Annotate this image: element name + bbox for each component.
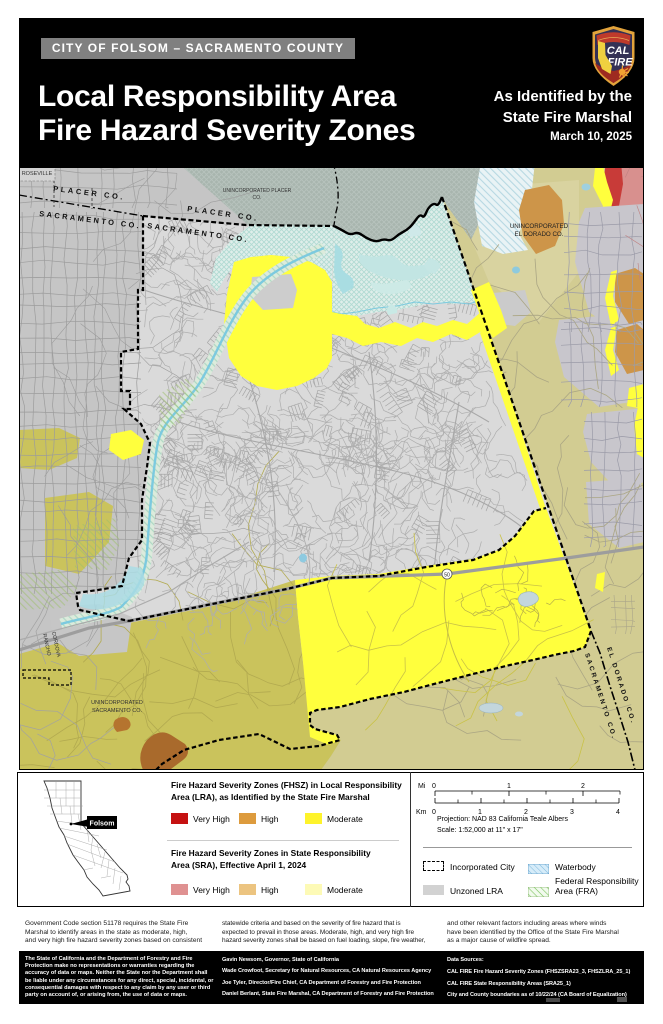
svg-text:EL DORADO CO.: EL DORADO CO. xyxy=(515,231,564,238)
svg-text:1: 1 xyxy=(478,809,482,816)
svg-text:Km: Km xyxy=(416,809,427,816)
svg-text:UNINCORPORATED PLACER: UNINCORPORATED PLACER xyxy=(223,188,292,194)
svg-text:1: 1 xyxy=(507,783,511,790)
svg-text:CAL: CAL xyxy=(607,45,630,57)
svg-text:UNINCORPORATED: UNINCORPORATED xyxy=(91,700,143,706)
svg-text:0: 0 xyxy=(432,809,436,816)
svg-text:ROSEVILLE: ROSEVILLE xyxy=(22,171,53,177)
svg-text:UNINCORPORATED: UNINCORPORATED xyxy=(510,223,569,230)
svg-text:2: 2 xyxy=(581,783,585,790)
svg-text:Mi: Mi xyxy=(418,783,426,790)
svg-text:3: 3 xyxy=(570,809,574,816)
svg-text:Folsom: Folsom xyxy=(90,821,115,828)
svg-text:50: 50 xyxy=(444,573,450,579)
svg-text:CO.: CO. xyxy=(253,195,262,201)
svg-text:0: 0 xyxy=(432,783,436,790)
svg-text:SACRAMENTO CO.: SACRAMENTO CO. xyxy=(92,708,142,714)
svg-text:2: 2 xyxy=(524,809,528,816)
svg-text:4: 4 xyxy=(616,809,620,816)
